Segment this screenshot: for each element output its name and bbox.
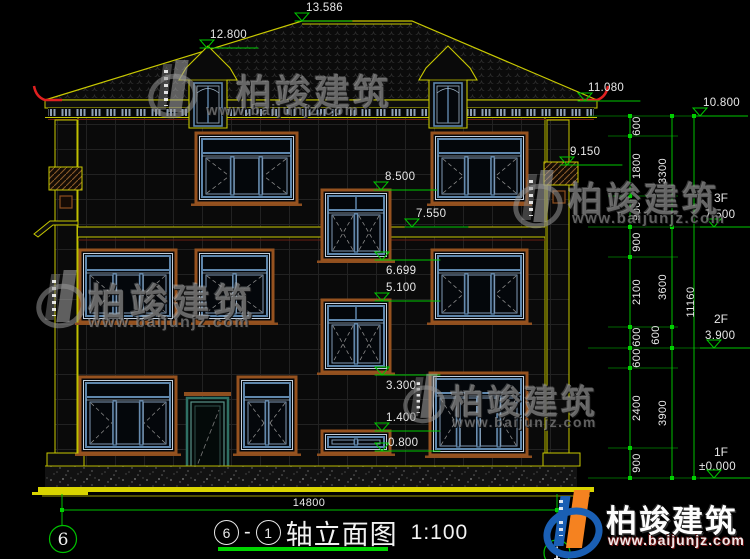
- window: [75, 377, 181, 456]
- level-label: 10.800: [703, 97, 740, 109]
- floor-label: 2F: [714, 312, 728, 326]
- dim-label: 2100: [631, 279, 643, 305]
- axis-number: 6: [58, 530, 69, 550]
- level-marker-eave: 11.080: [578, 82, 640, 101]
- level-marker-right-top: 10.800: [693, 97, 748, 116]
- level-label: 1.400: [386, 412, 416, 424]
- pilaster-ornament: [553, 191, 565, 203]
- axis-bubble-6: 6: [50, 526, 77, 553]
- dim-label: 3600: [657, 274, 669, 300]
- dim-label: 3900: [657, 400, 669, 426]
- level-marker-2f: 2F 3.900: [700, 312, 750, 348]
- entry-step: [32, 492, 88, 495]
- level-label: 5.100: [386, 282, 416, 294]
- level-label: 7.550: [416, 208, 446, 220]
- dim-label: 600: [631, 327, 643, 347]
- title-dash: -: [244, 521, 251, 544]
- dim-label: 600: [631, 348, 643, 368]
- dim-label: 900: [631, 453, 643, 473]
- level-label: 12.800: [210, 29, 247, 41]
- dim-label: 900: [631, 201, 643, 221]
- pilaster-right: [543, 120, 580, 466]
- title-axis-circle-left: 6: [214, 520, 239, 545]
- level-label: 8.500: [385, 171, 415, 183]
- pilaster-cap: [49, 167, 82, 190]
- dim-label: 900: [631, 232, 643, 252]
- floor-label: 1F: [714, 445, 728, 459]
- window: [191, 133, 302, 206]
- dim-label: 600: [650, 325, 662, 345]
- window: [427, 133, 532, 206]
- eave-fascia: [45, 100, 597, 108]
- overall-width-dim: 14800: [293, 497, 326, 509]
- dim-label: 600: [631, 116, 643, 136]
- cad-elevation-drawing: 13.586 12.800 11.080 9.150 8.500 7.550: [0, 0, 750, 559]
- window: [75, 250, 181, 325]
- dim-label: 2400: [631, 395, 643, 421]
- window: [191, 250, 278, 325]
- title-axis-circle-right: 1: [256, 520, 281, 545]
- dim-label: 1800: [631, 153, 643, 179]
- pilaster-ornament: [60, 196, 72, 208]
- window: [427, 250, 532, 325]
- level-label: ±0.000: [699, 461, 736, 473]
- level-label: 9.150: [570, 146, 600, 158]
- plinth: [45, 466, 577, 487]
- level-label: 13.586: [306, 2, 343, 14]
- brand-logo-icon: [543, 488, 601, 556]
- level-marker-cap: 9.150: [560, 146, 622, 165]
- window: [233, 377, 301, 456]
- pilaster-left: [34, 120, 84, 466]
- dim-label: 11160: [685, 287, 697, 318]
- drawing-svg: 13.586 12.800 11.080 9.150 8.500 7.550: [0, 0, 750, 559]
- roof: [34, 21, 608, 120]
- eave-dentil-band: [48, 108, 594, 117]
- title-scale: 1:100: [411, 521, 469, 545]
- pilaster-base: [543, 453, 580, 466]
- floor-label: 3F: [714, 191, 728, 205]
- right-dimension-area: 600 1800 900 900 2100 600 600 2400 900 3…: [588, 97, 750, 480]
- window: [317, 300, 395, 375]
- dim-label: 3300: [657, 158, 669, 184]
- level-label: 6.699: [386, 265, 416, 277]
- level-label: 0.800: [388, 437, 418, 449]
- window: [425, 373, 532, 458]
- level-marker-3f: 3F 7.500: [700, 191, 750, 227]
- title-underline: [218, 547, 388, 551]
- level-marker-ridge: 13.586: [295, 2, 352, 21]
- level-label: 3.300: [386, 380, 416, 392]
- level-marker-1f: 1F ±0.000: [699, 445, 750, 478]
- ground-line: [32, 487, 594, 496]
- footer-url-text: www.baijunjz.com: [608, 532, 745, 548]
- level-label: 11.080: [588, 82, 624, 94]
